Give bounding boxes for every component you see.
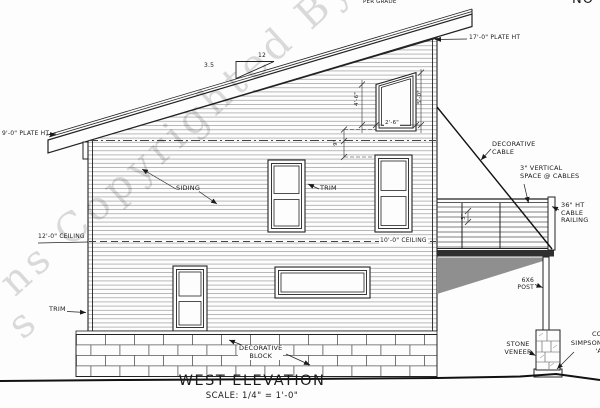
window-transom <box>275 267 370 298</box>
label-post-line2: POST <box>514 284 534 291</box>
label-stone-veneer-line2: VENEER <box>503 349 533 357</box>
label-slope-rise: 3.5 <box>204 62 214 70</box>
label-decorative-block-line2: BLOCK <box>238 353 283 361</box>
dim-window-left-height: 4'-6" <box>354 92 360 106</box>
deck-post <box>543 257 549 330</box>
label-trim-lower: TRIM <box>49 306 66 314</box>
drawing-scale: SCALE: 1/4" = 1'-0" <box>152 393 352 401</box>
dim-cable-space: 3" <box>461 214 469 220</box>
dim-window-width: 2'-6" <box>384 120 400 126</box>
label-cable-spacing: 3" VERTICAL SPACE @ CABLES <box>520 165 579 180</box>
label-trim-upper: TRIM <box>320 185 337 193</box>
window-upper-left <box>268 160 305 232</box>
label-ceiling-12: 12'-0" CEILING <box>38 233 85 241</box>
label-cable-railing: 36" HT CABLE RAILING <box>561 202 588 225</box>
dim-window-right-height: 5'-0" <box>417 90 423 104</box>
deck-beam <box>437 250 554 257</box>
label-cable-spacing-line2: SPACE @ CABLES <box>520 173 579 181</box>
label-post: 6X6 POST <box>514 277 534 291</box>
label-decorative-block: DECORATIVE BLOCK <box>238 345 283 360</box>
label-simpson-line3: 'A <box>558 347 600 356</box>
label-decorative-cable: DECORATIVE CABLE <box>492 141 535 156</box>
label-plate-height-low: 9'-0" PLATE HT <box>2 130 49 138</box>
elevation-sheet: PER GRADE NO 17'-0" PLATE HT 9'-0" PLATE… <box>0 0 600 408</box>
label-slope-run: 12 <box>258 52 266 60</box>
dim-gap: 9" <box>333 140 341 146</box>
label-siding: SIDING <box>176 185 200 193</box>
note-per-grade: PER GRADE <box>363 0 397 7</box>
window-lower-left <box>173 266 207 331</box>
label-cable-railing-line3: RAILING <box>561 217 588 225</box>
label-simpson-line1: CO <box>558 330 600 339</box>
note-corner-partial: NO <box>572 0 594 4</box>
window-upper-right <box>375 155 412 232</box>
rail-end-post <box>548 197 555 250</box>
label-ceiling-10: 10'-0" CEILING <box>379 237 428 245</box>
drawing-title: WEST ELEVATION <box>152 378 352 386</box>
label-decorative-cable-line2: CABLE <box>492 149 535 157</box>
label-simpson-line2: SIMPSON <box>558 339 600 348</box>
label-simpson-connector: CO SIMPSON 'A <box>558 330 600 356</box>
cable-railing <box>437 207 548 247</box>
ceiling-left-leader <box>38 242 88 243</box>
label-plate-height-high: 17'-0" PLATE HT <box>469 34 520 42</box>
label-stone-veneer: STONE VENEER <box>503 341 533 356</box>
label-post-line1: 6X6 <box>514 277 534 284</box>
